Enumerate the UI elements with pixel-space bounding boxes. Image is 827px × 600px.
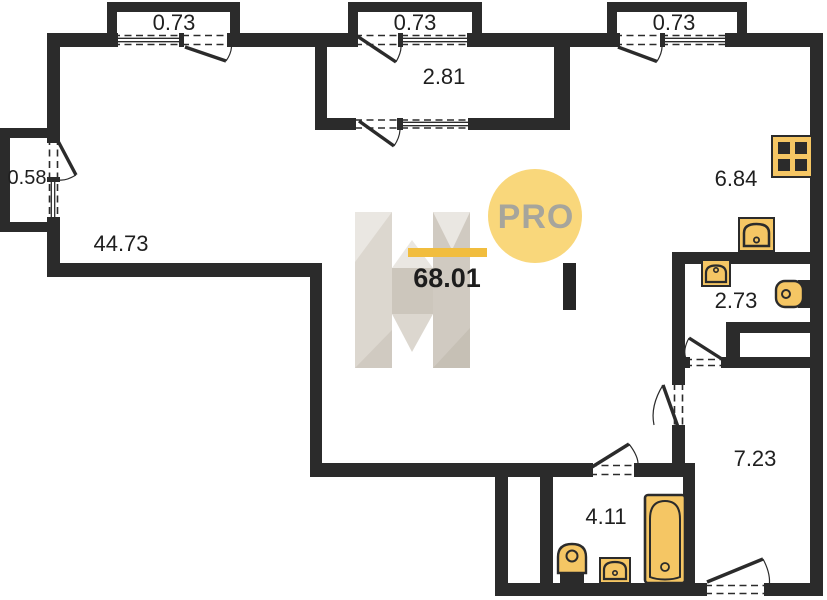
wall-cap xyxy=(47,177,60,182)
wall-segment xyxy=(672,252,823,264)
wall-cap xyxy=(398,33,403,47)
stove-burner xyxy=(778,159,790,171)
room-label-balcony-top-right: 0.73 xyxy=(653,10,696,35)
wall-segment xyxy=(47,33,60,138)
room-label-hall: 7.23 xyxy=(734,446,777,471)
watermark: PRO 68.01 xyxy=(355,169,582,368)
floor-plan: PRO 68.01 44.73 2.81 6.84 2.73 7.23 4.11… xyxy=(0,0,827,600)
door-swing-arc xyxy=(657,47,662,62)
wall-segment xyxy=(0,222,47,232)
watermark-total-area: 68.01 xyxy=(413,263,481,293)
wall-segment xyxy=(472,118,570,130)
watermark-cursor-bar xyxy=(563,263,576,310)
wall-cap xyxy=(684,357,690,368)
wall-segment xyxy=(232,33,355,47)
wall-cap xyxy=(179,33,184,47)
wall-segment xyxy=(315,47,327,130)
stove-burner xyxy=(778,142,790,154)
wall-cap xyxy=(701,583,707,596)
door-panel xyxy=(689,338,725,361)
wall-segment xyxy=(672,252,685,383)
window-loggia-bottom xyxy=(350,118,474,146)
wall-segment xyxy=(495,583,705,596)
door-panel xyxy=(618,47,657,62)
door-panel xyxy=(592,444,629,467)
door-swing-arc xyxy=(685,338,689,357)
window-kitchen xyxy=(615,33,730,62)
room-label-balcony-top-left: 0.73 xyxy=(153,10,196,35)
bathtub-icon xyxy=(645,495,685,583)
wall-cap xyxy=(660,33,665,47)
door-swing-arc xyxy=(396,47,401,62)
wall-cap xyxy=(227,33,232,47)
wall-segment xyxy=(47,263,322,277)
window-balcony-top-middle xyxy=(353,33,472,62)
wc-toilet-icon xyxy=(776,280,812,308)
door-swing-arc xyxy=(653,385,663,425)
bathroom-toilet-icon xyxy=(558,544,586,583)
door-panel xyxy=(357,36,396,62)
wall-segment xyxy=(672,427,685,465)
kitchen-sink-icon xyxy=(739,218,774,251)
wall-segment xyxy=(495,477,508,587)
wall-segment xyxy=(472,2,482,35)
wall-segment xyxy=(730,33,823,47)
wall-segment xyxy=(310,263,322,477)
room-label-bathroom: 4.11 xyxy=(585,504,626,529)
wall-cap xyxy=(615,33,620,47)
wall-cap xyxy=(725,33,730,47)
wall-segment xyxy=(810,33,823,596)
door-swing-arc xyxy=(226,47,232,61)
wc-sink-icon xyxy=(702,260,730,286)
watermark-pro-text: PRO xyxy=(498,198,575,236)
floor-plan-page: PRO 68.01 44.73 2.81 6.84 2.73 7.23 4.11… xyxy=(0,0,827,600)
wall-cap xyxy=(467,33,472,47)
wall-segment xyxy=(768,583,823,596)
room-label-balcony-top-middle: 0.73 xyxy=(394,10,437,35)
door-swing-arc xyxy=(763,559,770,583)
bathroom-sink-icon xyxy=(600,558,630,583)
wall-cap xyxy=(468,118,474,130)
door-wc xyxy=(684,338,727,368)
door-panel xyxy=(359,121,394,146)
door-panel xyxy=(707,559,763,582)
wall-cap xyxy=(397,118,403,130)
stove-icon xyxy=(772,136,812,177)
stove-burner xyxy=(795,142,807,154)
wall-segment xyxy=(230,2,240,35)
room-label-living: 44.73 xyxy=(93,231,148,256)
door-panel xyxy=(58,141,76,175)
wall-segment xyxy=(315,118,352,130)
door-swing-arc xyxy=(59,175,76,180)
door-entrance xyxy=(701,559,770,596)
wall-cap xyxy=(353,33,358,47)
toilet-bowl xyxy=(558,544,586,573)
wall-cap xyxy=(113,33,118,47)
door-panel xyxy=(185,47,226,61)
wall-segment xyxy=(0,128,47,138)
wall-segment xyxy=(540,477,553,587)
wall-segment xyxy=(554,47,570,130)
wall-segment xyxy=(472,33,615,47)
wall-segment xyxy=(726,357,823,368)
room-label-loggia: 2.81 xyxy=(423,64,466,89)
wall-cap xyxy=(672,379,685,385)
wall-cap xyxy=(350,118,356,130)
door-panel xyxy=(663,385,678,427)
room-label-wc: 2.73 xyxy=(715,288,758,313)
wall-segment xyxy=(310,463,590,477)
h-logo-facet xyxy=(392,314,433,352)
window-balcony-top-left xyxy=(113,33,232,61)
wall-cap xyxy=(634,463,640,477)
stove-burner xyxy=(795,159,807,171)
watermark-underline xyxy=(408,248,487,257)
wall-cap xyxy=(47,217,60,222)
wall-cap xyxy=(764,583,770,596)
door-swing-arc xyxy=(629,444,638,463)
door-swing-arc xyxy=(394,130,400,146)
door-hall xyxy=(653,379,685,431)
wall-segment xyxy=(738,322,823,333)
wall-segment xyxy=(737,2,747,35)
door-bathroom xyxy=(587,444,640,477)
window-balcony-left xyxy=(47,138,76,222)
room-label-kitchen: 6.84 xyxy=(715,166,758,191)
room-label-balcony-left: 0.58 xyxy=(8,167,47,189)
